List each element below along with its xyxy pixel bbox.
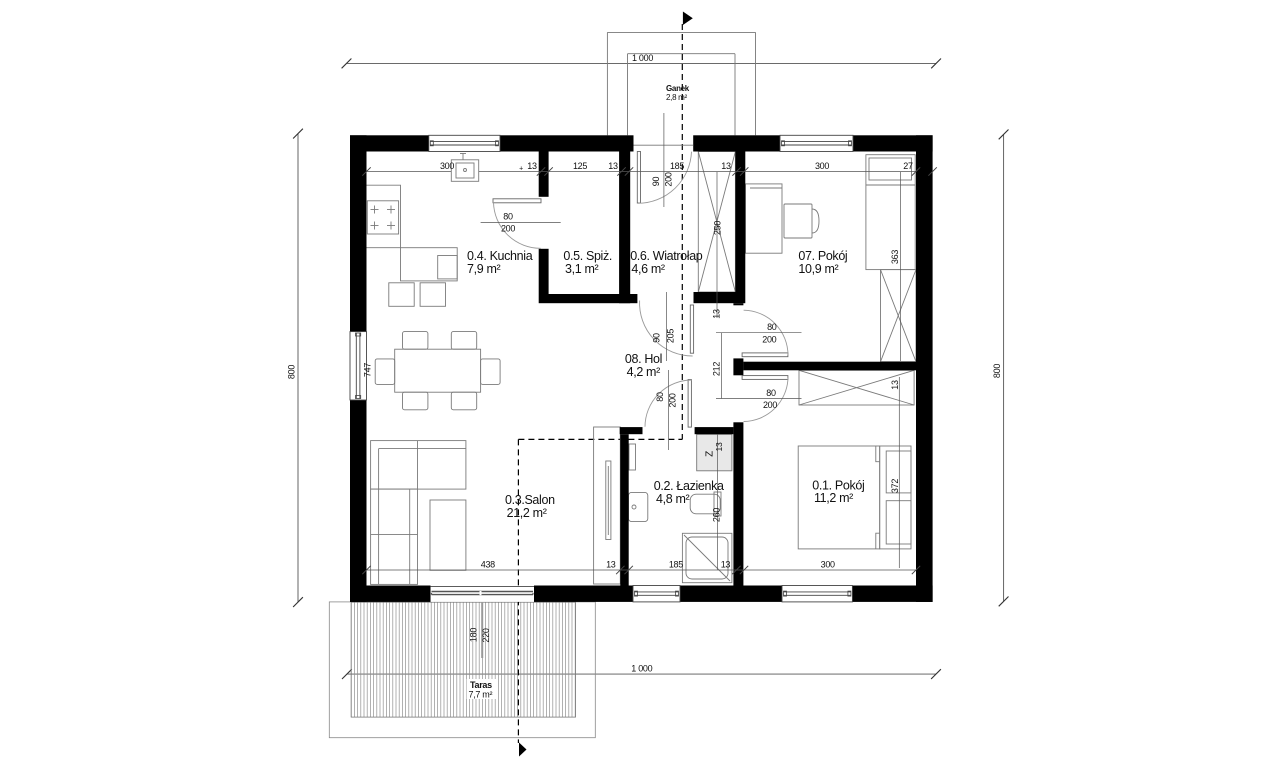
- svg-text:21,2 m²: 21,2 m²: [507, 506, 547, 520]
- svg-text:4,2 m²: 4,2 m²: [627, 365, 661, 379]
- svg-text:13: 13: [711, 309, 721, 319]
- svg-text:200: 200: [501, 224, 515, 234]
- svg-text:747: 747: [362, 363, 372, 377]
- svg-text:1 000: 1 000: [632, 53, 653, 63]
- svg-text:90: 90: [652, 333, 662, 343]
- svg-text:200: 200: [668, 393, 678, 407]
- svg-text:1 000: 1 000: [631, 664, 652, 674]
- svg-text:80: 80: [767, 322, 777, 332]
- svg-text:13: 13: [606, 560, 616, 570]
- svg-text:800: 800: [992, 364, 1002, 378]
- svg-text:80: 80: [655, 392, 665, 402]
- svg-text:372: 372: [890, 479, 900, 493]
- svg-text:Ganek: Ganek: [666, 84, 690, 93]
- svg-text:11,2 m²: 11,2 m²: [814, 491, 853, 505]
- svg-text:212: 212: [712, 362, 722, 376]
- svg-text:3,1 m²: 3,1 m²: [565, 262, 599, 276]
- svg-text:200: 200: [664, 172, 674, 186]
- svg-text:4,6 m²: 4,6 m²: [631, 262, 665, 276]
- svg-text:438: 438: [481, 560, 495, 570]
- svg-text:13: 13: [721, 161, 731, 171]
- svg-text:7,7 m²: 7,7 m²: [469, 690, 493, 700]
- svg-text:0.5. Spiż.: 0.5. Spiż.: [563, 249, 612, 263]
- svg-text:300: 300: [821, 560, 835, 570]
- svg-text:80: 80: [503, 212, 513, 222]
- svg-text:13: 13: [714, 442, 724, 451]
- svg-text:0.4. Kuchnia: 0.4. Kuchnia: [467, 249, 533, 263]
- svg-text:0.6. Wiatrołap: 0.6. Wiatrołap: [630, 249, 703, 263]
- svg-text:13: 13: [608, 161, 618, 171]
- svg-text:300: 300: [815, 161, 829, 171]
- svg-text:185: 185: [669, 560, 683, 570]
- svg-text:7,9 m²: 7,9 m²: [467, 262, 501, 276]
- svg-text:4,8 m²: 4,8 m²: [656, 492, 690, 506]
- svg-text:800: 800: [287, 365, 297, 379]
- svg-text:2,8 m²: 2,8 m²: [666, 93, 688, 102]
- svg-text:260: 260: [712, 508, 722, 522]
- svg-text:Taras: Taras: [470, 680, 492, 690]
- svg-text:300: 300: [440, 161, 454, 171]
- svg-text:180: 180: [469, 628, 479, 642]
- svg-text:+: +: [519, 166, 523, 173]
- svg-text:13: 13: [721, 560, 731, 570]
- svg-text:13: 13: [890, 380, 900, 390]
- svg-text:200: 200: [763, 400, 777, 410]
- svg-text:08. Hol: 08. Hol: [625, 352, 662, 366]
- svg-text:0.3.Salon: 0.3.Salon: [505, 493, 555, 507]
- svg-text:13: 13: [527, 161, 537, 171]
- svg-text:07. Pokój: 07. Pokój: [798, 249, 847, 263]
- svg-text:90: 90: [651, 177, 661, 187]
- svg-text:125: 125: [573, 161, 587, 171]
- svg-text:10,9 m²: 10,9 m²: [798, 262, 838, 276]
- svg-text:363: 363: [890, 250, 900, 264]
- svg-text:185: 185: [670, 161, 684, 171]
- svg-text:27: 27: [903, 161, 913, 171]
- svg-text:80: 80: [766, 388, 776, 398]
- svg-text:205: 205: [666, 329, 676, 343]
- svg-text:0.2. Łazienka: 0.2. Łazienka: [654, 479, 724, 493]
- svg-text:250: 250: [713, 221, 723, 235]
- svg-text:200: 200: [762, 334, 776, 344]
- svg-text:220: 220: [481, 628, 491, 642]
